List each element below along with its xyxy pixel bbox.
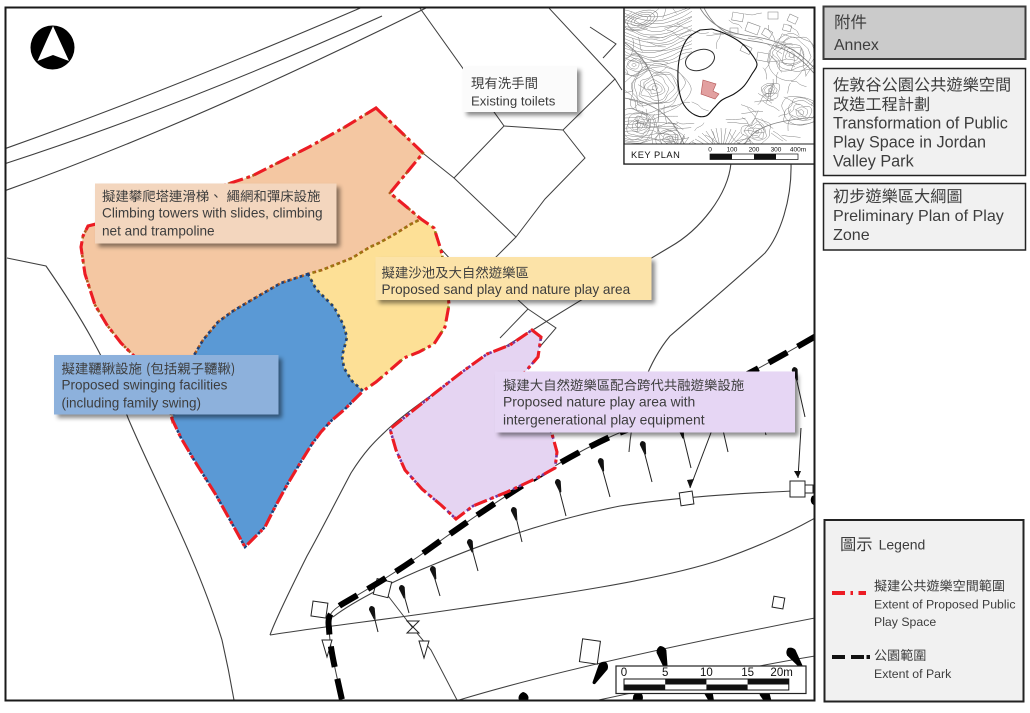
svg-text:Existing toilets: Existing toilets xyxy=(471,94,556,109)
svg-text:15: 15 xyxy=(741,667,754,679)
svg-text:20m: 20m xyxy=(770,667,792,679)
svg-text:(including family swing): (including family swing) xyxy=(62,396,202,411)
svg-text:10: 10 xyxy=(700,667,713,679)
svg-text:KEY PLAN: KEY PLAN xyxy=(631,150,680,160)
svg-text:200: 200 xyxy=(749,147,760,154)
svg-text:Proposed nature play area with: Proposed nature play area with xyxy=(503,394,695,410)
svg-text:Proposed swinging facilities: Proposed swinging facilities xyxy=(62,378,228,393)
svg-text:Annex: Annex xyxy=(834,37,879,54)
svg-text:Extent of Proposed Public: Extent of Proposed Public xyxy=(874,598,1016,612)
svg-text:Legend: Legend xyxy=(879,537,926,553)
svg-text:intergenerational play equipme: intergenerational play equipment xyxy=(503,412,705,428)
svg-text:400m: 400m xyxy=(790,147,806,154)
svg-text:0: 0 xyxy=(708,147,712,154)
svg-text:Play Space in Jordan: Play Space in Jordan xyxy=(833,134,986,152)
svg-text:Zone: Zone xyxy=(833,226,870,244)
svg-text:Extent of Park: Extent of Park xyxy=(874,667,952,681)
svg-text:Proposed sand play and nature: Proposed sand play and nature play area xyxy=(382,282,631,297)
svg-text:0: 0 xyxy=(621,667,627,679)
svg-text:Play Space: Play Space xyxy=(874,615,936,629)
svg-text:net and trampoline: net and trampoline xyxy=(102,224,215,239)
svg-text:Valley Park: Valley Park xyxy=(833,153,915,171)
svg-text:Transformation of Public: Transformation of Public xyxy=(833,115,1008,133)
svg-text:5: 5 xyxy=(662,667,668,679)
svg-text:Preliminary Plan of Play: Preliminary Plan of Play xyxy=(833,207,1005,225)
svg-text:Climbing towers with slides, c: Climbing towers with slides, climbing xyxy=(102,206,323,221)
svg-text:300: 300 xyxy=(771,147,782,154)
svg-text:100: 100 xyxy=(727,147,738,154)
